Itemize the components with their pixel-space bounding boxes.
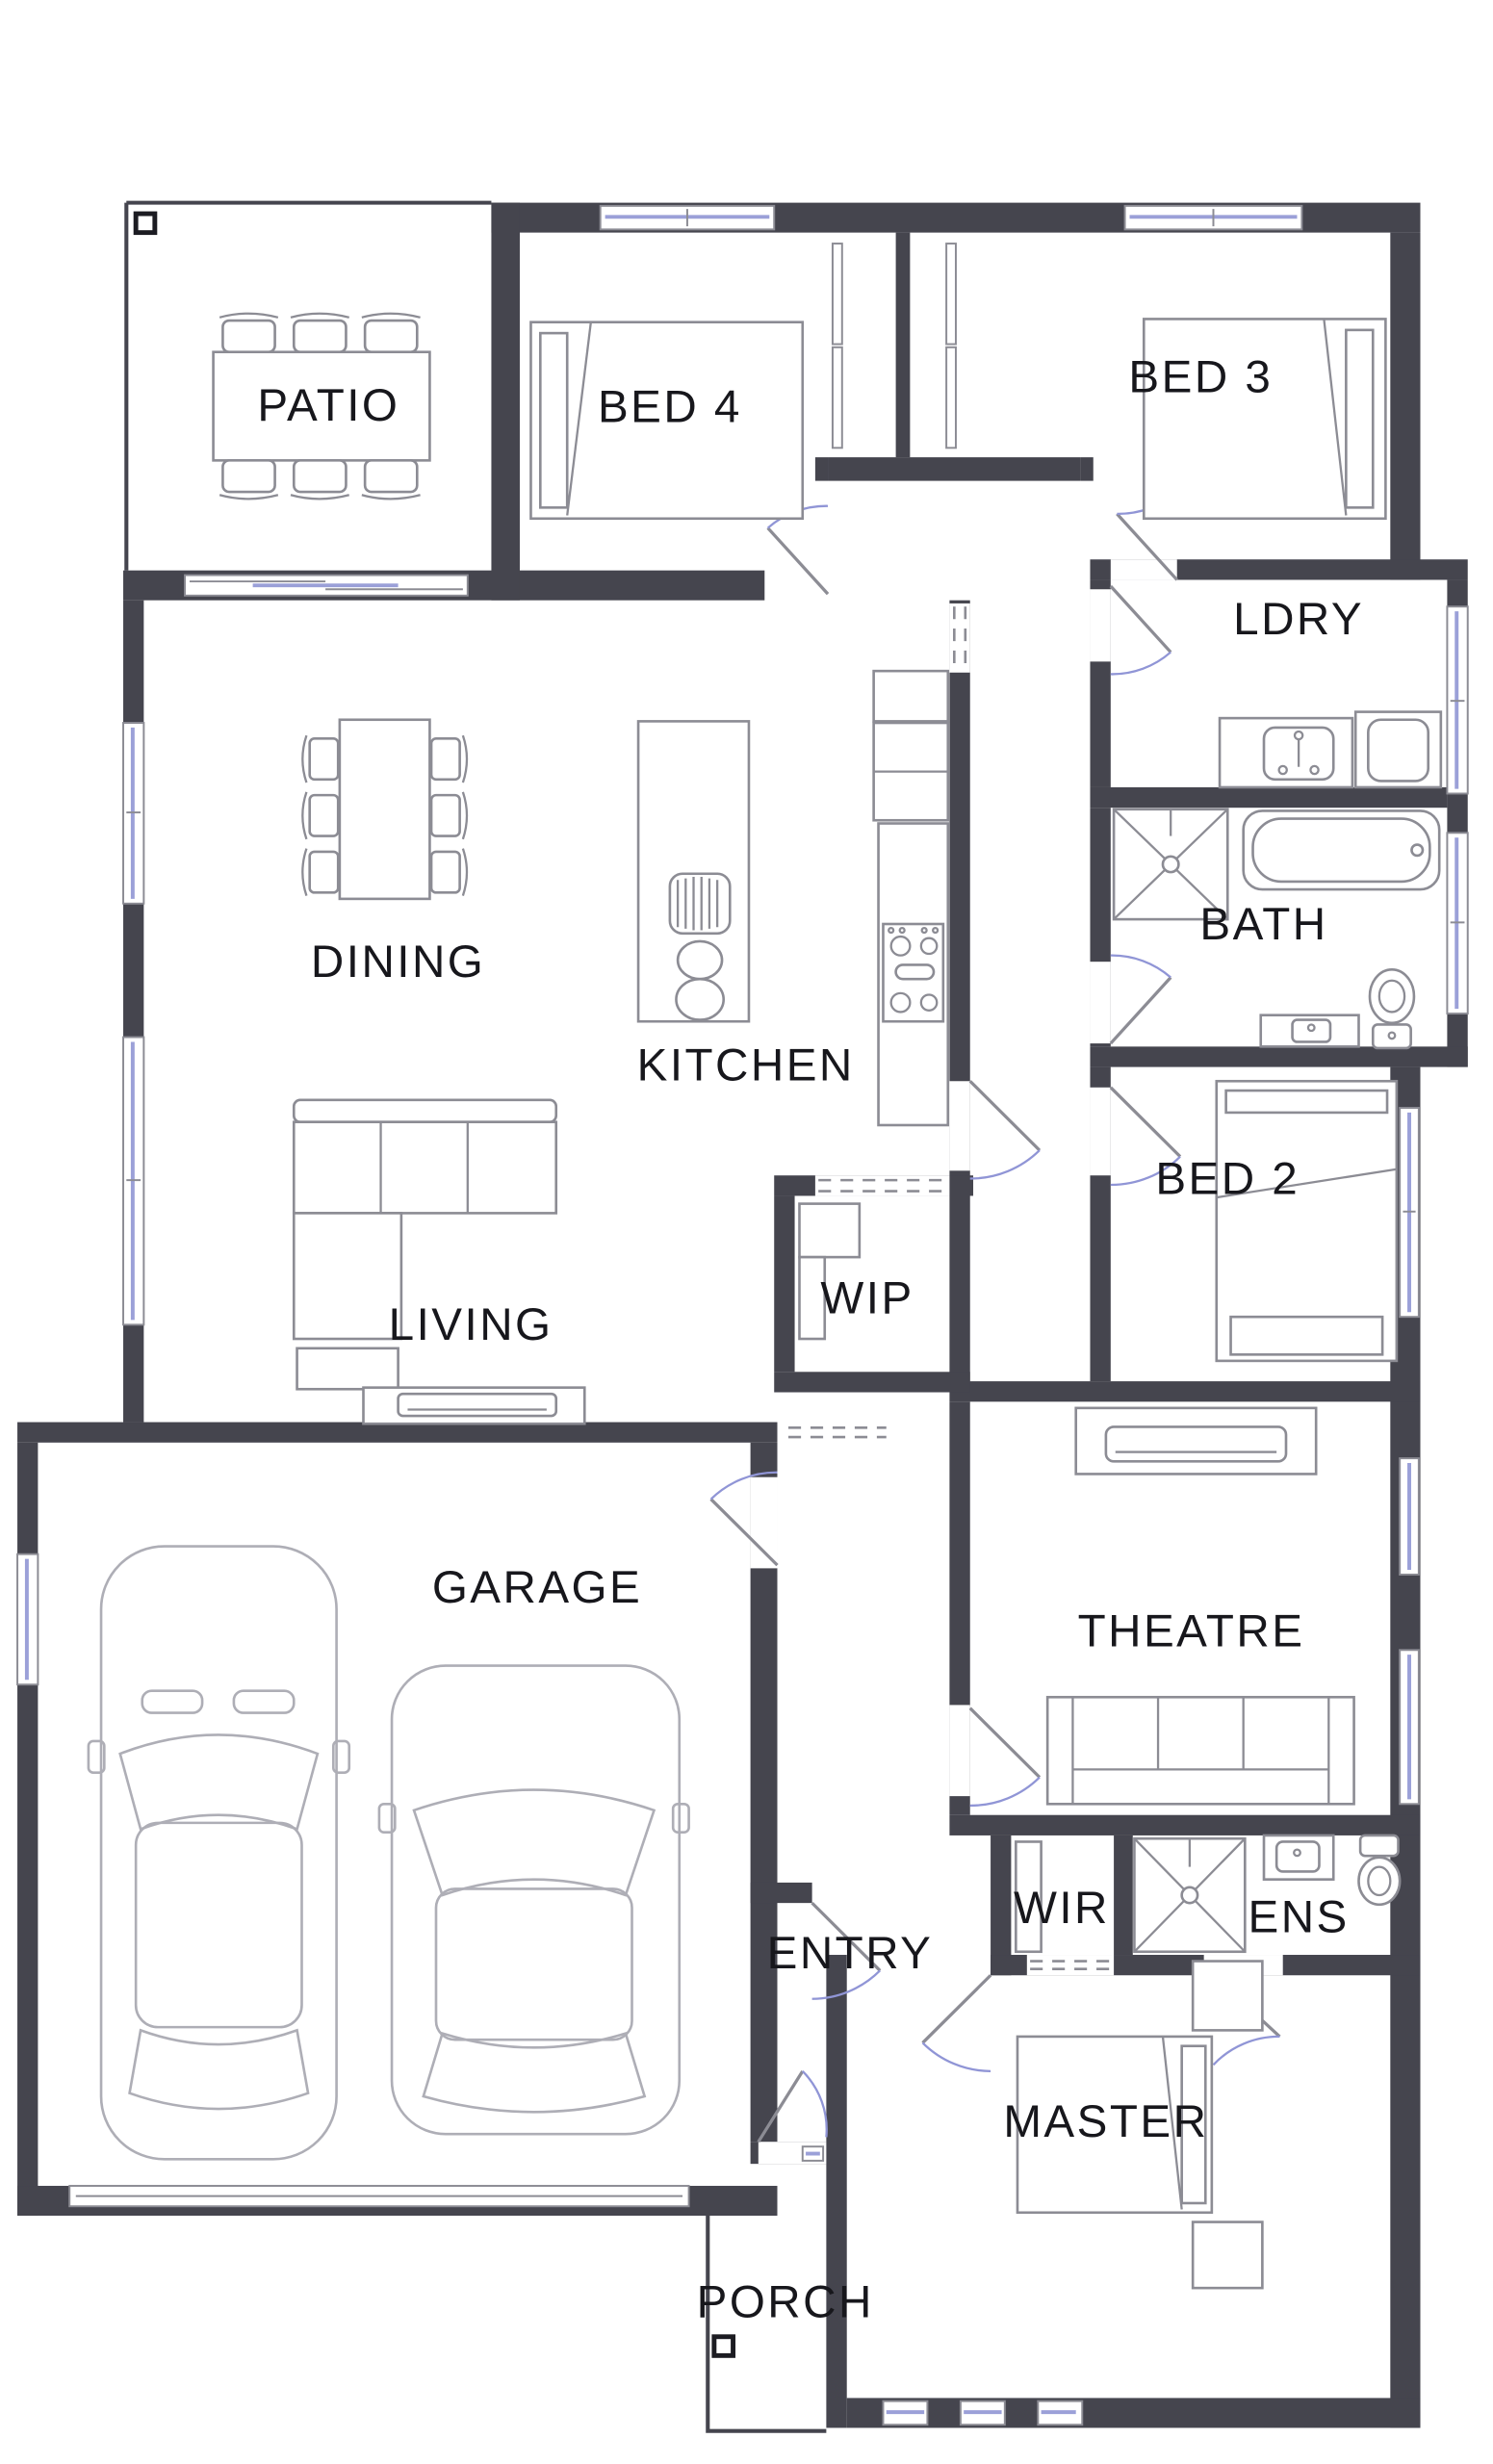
robe-bed3-icon [946, 244, 956, 448]
tv-unit-icon [363, 1388, 584, 1424]
window-bed4 [601, 206, 775, 229]
bed-icon [1217, 1081, 1397, 1361]
room-label-kitchen: KITCHEN [637, 1040, 855, 1091]
washing-machine-icon [1355, 712, 1441, 787]
room-label-ldry: LDRY [1233, 594, 1364, 645]
window-bed3 [1125, 206, 1302, 229]
vanity-icon [1261, 1015, 1359, 1047]
window-bath [1447, 833, 1467, 1014]
room-label-garage: GARAGE [432, 1562, 642, 1613]
kitchen-tall-cabinet-icon [874, 671, 948, 820]
window-ldry [1447, 606, 1467, 793]
window-master-2 [961, 2401, 1005, 2425]
room-label-ens: ENS [1248, 1892, 1349, 1943]
room-label-dining: DINING [311, 937, 485, 988]
window-theatre-2 [1400, 1650, 1419, 1804]
door-swing-master-icon [923, 1975, 991, 2071]
window-theatre-1 [1400, 1458, 1419, 1575]
kitchen-counter-icon [879, 824, 948, 1125]
room-label-wir: WIR [1014, 1883, 1110, 1934]
window-dining [123, 723, 143, 904]
bathtub-icon [1244, 810, 1440, 889]
laundry-bench-icon [1220, 718, 1352, 787]
toilet-icon [1358, 1835, 1400, 1905]
room-label-bath: BATH [1199, 899, 1327, 950]
vanity-icon [1264, 1835, 1333, 1880]
shower-icon [1134, 1838, 1245, 1952]
floor-plan-page: { "document": { "type": "residential-flo… [0, 0, 1493, 2464]
porch-marker-icon [714, 2337, 734, 2356]
nightstand-icon [1193, 1962, 1262, 2031]
kitchen-island-icon [638, 721, 749, 1021]
window-bed2 [1400, 1108, 1419, 1317]
room-label-bed4: BED 4 [598, 382, 742, 433]
robe-bed4-icon [833, 244, 842, 448]
car-icon [379, 1666, 689, 2135]
floor-plan-canvas: PATIOBED 4BED 3LDRYDININGBATHKITCHENBED … [0, 0, 1493, 2464]
utility-symbol-icons [136, 214, 733, 2355]
room-label-bed3: BED 3 [1128, 352, 1273, 403]
door-swing-hall-icon [970, 1081, 1040, 1178]
tv-unit-icon [1076, 1408, 1316, 1475]
room-label-porch: PORCH [697, 2277, 874, 2328]
room-label-entry: ENTRY [767, 1928, 934, 1979]
room-label-bed2: BED 2 [1155, 1153, 1300, 1204]
cooktop-icon [883, 924, 942, 1021]
window-master-3 [1038, 2401, 1082, 2425]
window-master-1 [883, 2401, 927, 2425]
room-label-theatre: THEATRE [1078, 1606, 1305, 1657]
window-living [123, 1038, 143, 1325]
front-door-sidelight [803, 2146, 823, 2161]
dining-table-icon [302, 720, 467, 899]
room-label-patio: PATIO [257, 380, 399, 431]
garage-door [69, 2186, 688, 2206]
bed-icon [1144, 319, 1385, 518]
door-swing-bath-icon [1111, 956, 1171, 1043]
door-swing-theatre-icon [970, 1708, 1040, 1806]
room-label-wip: WIP [820, 1272, 914, 1323]
window-garage [17, 1554, 38, 1685]
car-icon [89, 1547, 349, 2160]
room-label-master: MASTER [1003, 2096, 1208, 2147]
sliding-door-patio [185, 576, 468, 596]
toilet-icon [1370, 969, 1414, 1048]
wardrobe-sliders [833, 244, 956, 448]
nightstand-icon [1193, 2222, 1262, 2289]
sofa-icon [1047, 1697, 1353, 1804]
door-swing-ldry-icon [1111, 586, 1171, 674]
patio-marker-icon [136, 214, 155, 233]
room-label-living: LIVING [389, 1299, 553, 1350]
